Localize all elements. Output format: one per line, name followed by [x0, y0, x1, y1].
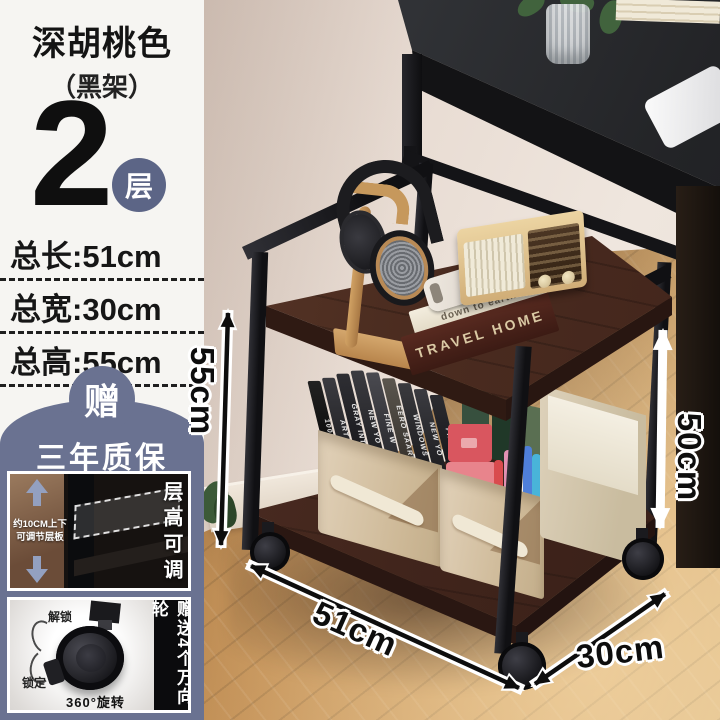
- wheel-gift-strip: 赠送4个万向轮: [154, 600, 188, 710]
- gift-banner: 赠 三年质保 约10CM上下 可调节层板 层高可调: [0, 400, 204, 720]
- books-on-desk: [616, 0, 720, 24]
- radio-dial: [562, 270, 576, 285]
- lock-label: 锁定: [22, 674, 46, 691]
- dimension-label-height: 55cm: [183, 347, 221, 435]
- adjust-note: 约10CM上下 可调节层板: [10, 518, 70, 545]
- adjustable-shelf-inset: 约10CM上下 可调节层板 层高可调: [7, 471, 191, 591]
- color-title: 深胡桃色: [0, 16, 204, 65]
- radio-dial: [538, 274, 552, 289]
- tier-unit-badge: 层: [112, 158, 166, 212]
- arrow-down-icon: [26, 569, 48, 583]
- spec-list: 总长:51cm 总宽:30cm 总高:55cm: [0, 228, 204, 387]
- storage-box-right: [540, 385, 646, 567]
- glass-vase: [546, 4, 590, 64]
- radio-grille: [463, 234, 525, 298]
- tier-number: 2: [30, 78, 113, 228]
- caster-wheel: [250, 532, 290, 572]
- arrow-up-icon: [26, 479, 48, 493]
- caster-wheel-inset: 解锁 锁定 360°旋转 赠送4个万向轮: [7, 597, 191, 713]
- unlock-label: 解锁: [48, 608, 72, 625]
- caster-wheel: [498, 642, 546, 690]
- adjust-side-label: 层高可调: [157, 481, 186, 585]
- gift-badge: 赠: [69, 366, 135, 432]
- info-panel: 深胡桃色 （黑架） 2 层 总长:51cm 总宽:30cm 总高:55cm 赠 …: [0, 0, 204, 720]
- product-image: 1000 ART GRAY INTE NEW YO FINE W EERO SA…: [0, 0, 720, 720]
- dimension-label-shelf-height: 50cm: [670, 413, 708, 501]
- tier-count: 2 层: [0, 104, 204, 220]
- rotate-label: 360°旋转: [66, 692, 125, 711]
- caster-wheel: [622, 538, 664, 580]
- spec-width: 总宽:30cm: [0, 281, 204, 334]
- desk-side-panel: [676, 186, 720, 568]
